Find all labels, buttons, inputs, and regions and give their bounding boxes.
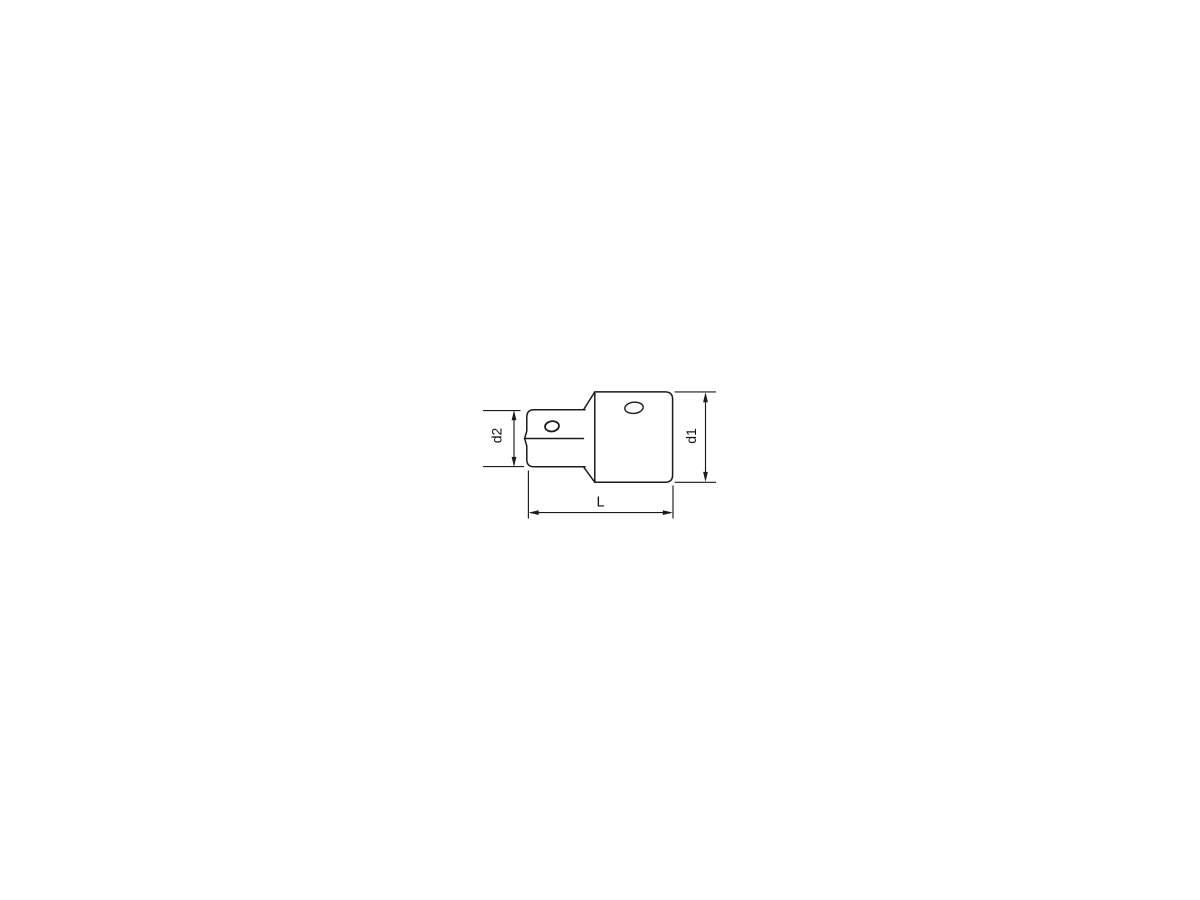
d1-label: d1	[683, 428, 699, 444]
dimension-L: L	[528, 471, 673, 519]
d1-arrow-up-icon	[703, 392, 708, 402]
L-arrow-left-icon	[529, 510, 539, 515]
body-detent-hole	[624, 401, 643, 414]
body-outline	[595, 392, 673, 482]
adapter-drive	[525, 410, 585, 467]
d2-arrow-down-icon	[512, 457, 517, 467]
dimension-d2: d2	[483, 410, 524, 467]
adapter-body	[595, 392, 673, 482]
drive-detent-hole	[544, 420, 559, 432]
socket-adapter-technical-drawing: d2 d1 L	[440, 360, 760, 540]
d2-label: d2	[489, 428, 505, 444]
dimension-d1: d1	[675, 392, 716, 482]
d1-arrow-down-icon	[703, 472, 708, 482]
L-label: L	[596, 495, 604, 511]
taper-top-line	[584, 392, 595, 410]
L-arrow-right-icon	[663, 510, 673, 515]
screenshot-canvas: d2 d1 L	[0, 0, 1200, 900]
d2-arrow-up-icon	[512, 410, 517, 420]
adapter-neck-taper	[584, 392, 595, 482]
taper-bottom-line	[584, 467, 595, 483]
